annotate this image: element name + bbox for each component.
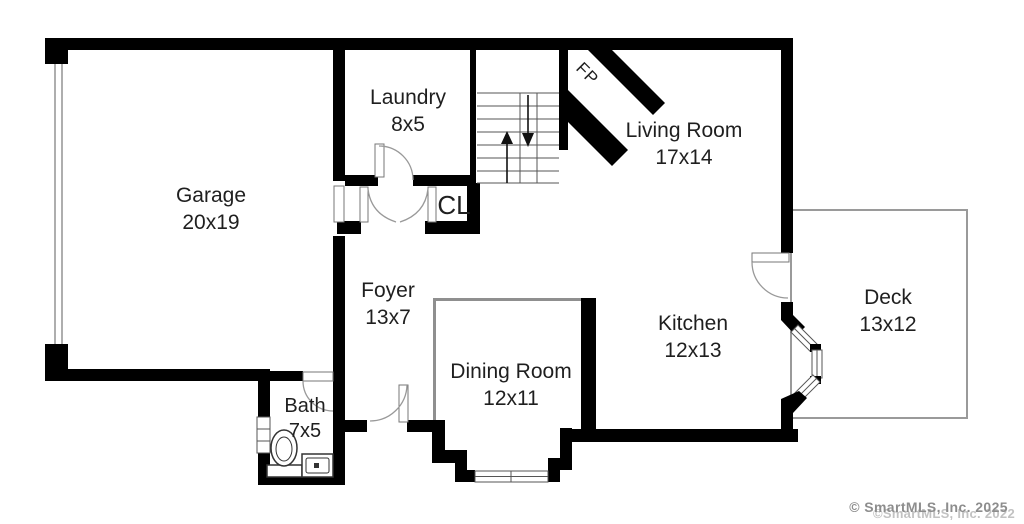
sink-vanity — [302, 454, 333, 477]
room-dims: 7x5 — [284, 419, 325, 444]
room-dims: 13x7 — [361, 304, 415, 331]
bath-window — [257, 417, 270, 453]
garage-door-wall — [55, 62, 62, 347]
room-dims: 12x11 — [450, 385, 571, 412]
room-name: Deck — [859, 284, 916, 311]
room-dims: 12x13 — [658, 337, 728, 364]
bay-window-center — [812, 350, 822, 378]
staircase — [477, 93, 559, 183]
garage-entry-door — [334, 186, 344, 222]
deck-door — [752, 253, 789, 298]
stairs-down-arrow — [522, 95, 534, 147]
room-dims: 20x19 — [176, 209, 246, 236]
room-name: Kitchen — [658, 310, 728, 337]
watermark: © SmartMLS, Inc. 2025 — [849, 499, 1008, 515]
room-name: Garage — [176, 182, 246, 209]
room-label-kitchen: Kitchen 12x13 — [658, 310, 728, 364]
closet-double-door-right — [400, 187, 436, 222]
room-name: Foyer — [361, 277, 415, 304]
room-label-bath: Bath 7x5 — [284, 394, 325, 444]
floor-plan-drawing — [0, 0, 1024, 524]
closet-label: CL — [437, 192, 470, 218]
room-label-laundry: Laundry 8x5 — [370, 84, 446, 138]
room-label-deck: Deck 13x12 — [859, 284, 916, 338]
dining-bay-window — [475, 471, 548, 482]
room-label-living-room: Living Room 17x14 — [626, 117, 743, 171]
laundry-door — [375, 144, 413, 180]
room-dims: 13x12 — [859, 311, 916, 338]
floor-plan: Garage 20x19 Laundry 8x5 Living Room 17x… — [0, 0, 1024, 524]
room-dims: 8x5 — [370, 111, 446, 138]
stairs-up-arrow — [501, 131, 513, 183]
front-door — [370, 385, 408, 422]
room-dims: 17x14 — [626, 144, 743, 171]
kitchen-bay — [781, 308, 822, 442]
room-name: Laundry — [370, 84, 446, 111]
room-name: Living Room — [626, 117, 743, 144]
room-name: Bath — [284, 394, 325, 419]
room-name: Dining Room — [450, 358, 571, 385]
room-label-dining-room: Dining Room 12x11 — [450, 358, 571, 412]
room-label-garage: Garage 20x19 — [176, 182, 246, 236]
closet-double-door-left — [360, 187, 396, 222]
room-label-foyer: Foyer 13x7 — [361, 277, 415, 331]
